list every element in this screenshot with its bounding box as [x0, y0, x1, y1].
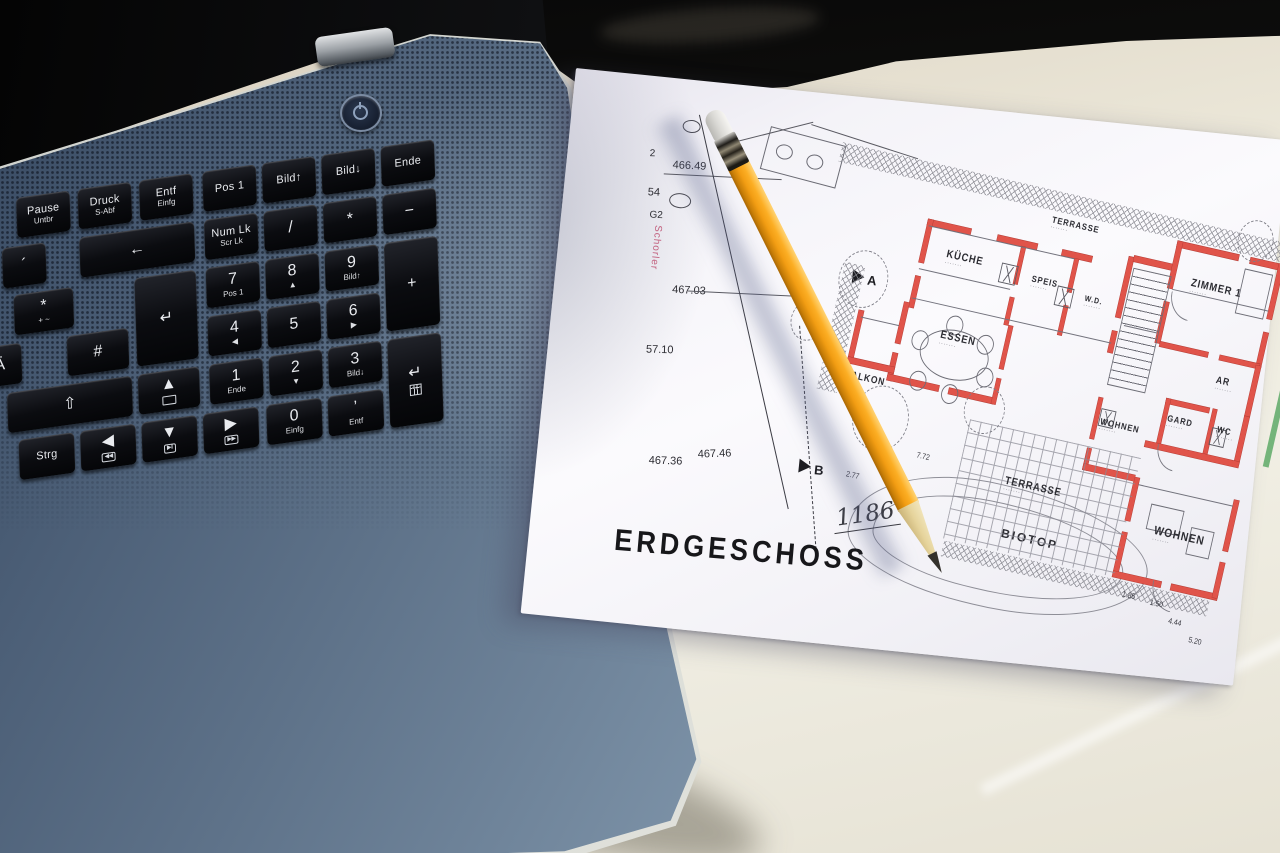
plan-wall [1159, 341, 1208, 357]
key-label: ↵ [408, 364, 422, 383]
key-a-umlaut: Ä [0, 343, 22, 389]
elevation-mark-e46746: 467.46 [697, 447, 731, 460]
room-label-gard: GARD······· [1165, 413, 1194, 434]
key-arrow-up: ▲ [138, 366, 201, 415]
key-iso-enter: ↵ [134, 270, 198, 367]
key-np6: 6▶ [326, 292, 381, 340]
plan-wall [1166, 398, 1210, 413]
key-label: Ende [394, 155, 421, 170]
key-acute: ´ [2, 242, 47, 288]
key-bild-down: Bild↓ [321, 148, 376, 196]
blueprint-paper: 2466.4954G2467.0357.10467.36467.46 A BBI… [521, 68, 1280, 686]
key-sublabel: ◀ [232, 337, 238, 346]
key-numlk: Num LkScr Lk [204, 213, 259, 261]
key-np0: 0Einfg [266, 397, 323, 445]
door-swing [1166, 291, 1193, 321]
site-circle [774, 143, 794, 162]
dimension-d150: 1.50 [1149, 598, 1164, 610]
key-label: 8 [287, 262, 297, 280]
key-backspace: ← [79, 221, 195, 277]
key-np-slash: / [263, 204, 318, 252]
key-label: ↵ [159, 309, 173, 328]
key-sublabel: Einfg [286, 425, 304, 436]
key-label: Strg [36, 449, 58, 464]
power-icon-bar [359, 102, 361, 109]
key-np-asterisk: * [323, 196, 378, 244]
room-label-speis: SPEIS······· [1029, 274, 1059, 296]
photo-scene: 2466.4954G2467.0357.10467.36467.46 A BBI… [0, 0, 1280, 853]
elevation-mark-e5710: 57.10 [646, 343, 674, 356]
key-hash: # [67, 328, 130, 377]
room-label-kueche: KÜCHE······· [944, 248, 985, 274]
plan-wall [1219, 355, 1260, 369]
key-label: 7 [228, 271, 238, 289]
elevation-mark-e2: 2 [650, 148, 656, 159]
key-label: ▲ [161, 375, 178, 394]
key-label: # [93, 343, 103, 361]
key-sublabel: Einfg [157, 198, 175, 209]
key-shift: ⇧ [7, 376, 133, 434]
key-label: ▶ [224, 416, 237, 435]
key-np-plus: + [384, 236, 441, 332]
key-np5: 5 [267, 301, 322, 349]
room-label-wohnen-mitte: WOHNEN······· [1098, 416, 1141, 440]
dimension-d520: 5.20 [1188, 635, 1203, 647]
dimension-d444: 4.44 [1167, 616, 1182, 628]
next-track-icon: ▶▶ [224, 435, 238, 445]
key-label: 3 [350, 351, 360, 369]
key-pos1: Pos 1 [202, 164, 257, 212]
plan-line [861, 317, 899, 327]
key-sublabel: Scr Lk [220, 237, 243, 249]
key-label: Ä [0, 357, 6, 375]
dimension-d772: 7.72 [916, 450, 931, 462]
key-np1: 1Ende [209, 357, 264, 405]
key-arrow-left: ◀◀◀ [80, 424, 137, 472]
key-np-minus: − [382, 188, 437, 236]
key-np-enter: ↵ [387, 332, 444, 428]
display-icon [162, 395, 176, 406]
calculator-icon [410, 383, 422, 396]
plan-wall [1212, 562, 1225, 598]
red-stamp-note: Schorler [648, 225, 664, 271]
key-np8: 8▲ [265, 252, 320, 300]
key-label: ▼ [161, 424, 178, 443]
key-label: ’ [353, 399, 357, 416]
key-sublabel: Bild↓ [347, 368, 364, 379]
key-sublabel: ▼ [292, 377, 300, 387]
plan-wall [1223, 500, 1239, 552]
key-np2: 2▼ [268, 349, 323, 397]
key-ende: Ende [380, 139, 435, 187]
key-label: 9 [347, 254, 357, 272]
key-sublabel: S-Abf [95, 206, 115, 217]
plan-line [919, 268, 1010, 290]
play-pause-icon: ▶‖ [164, 443, 176, 453]
key-label: − [404, 202, 414, 220]
hatch-strip-north [839, 142, 1280, 263]
key-sublabel: Untbr [34, 215, 54, 226]
key-label: 2 [291, 359, 301, 377]
room-label-wd: W.D.······· [1082, 294, 1103, 313]
plan-wall [895, 302, 909, 344]
plan-wall [999, 326, 1013, 370]
plan-wall [1245, 365, 1261, 417]
key-sublabel: + ~ [38, 315, 50, 325]
key-label: ← [129, 240, 146, 259]
key-arrow-right: ▶▶▶ [203, 406, 260, 454]
key-star-plus-tilde: *+ ~ [13, 287, 74, 336]
key-np9: 9Bild↑ [324, 244, 379, 292]
key-np3: 3Bild↓ [328, 341, 383, 389]
door-swing [1153, 444, 1178, 472]
plan-wall [1234, 416, 1250, 464]
key-bild-up: Bild↑ [262, 156, 317, 204]
room-label-ar: AR······· [1214, 375, 1235, 396]
key-label: * [40, 298, 47, 316]
power-button [340, 94, 382, 132]
key-label: 5 [289, 315, 299, 333]
room-label-zimmer1: ZIMMER 1······· [1188, 277, 1242, 306]
key-sublabel: ▲ [289, 280, 297, 290]
key-label: Bild↑ [276, 172, 302, 187]
key-pause: PauseUntbr [16, 190, 71, 238]
key-sublabel: Entf [349, 417, 363, 427]
key-label: + [407, 275, 417, 293]
elevation-mark-eg2: G2 [649, 210, 663, 222]
key-druck: DruckS-Abf [77, 182, 132, 230]
plan-wall [908, 276, 920, 308]
key-label: ⇧ [63, 395, 77, 414]
key-label: 4 [230, 319, 240, 337]
key-label: Pos 1 [215, 180, 245, 196]
key-label: 0 [289, 408, 299, 426]
key-label: 6 [348, 302, 358, 320]
key-sublabel: Bild↑ [343, 271, 360, 282]
room-area-note: ······· [1214, 386, 1233, 396]
keyboard: PauseUntbrDruckS-AbfEntfEinfgPos 1Bild↑B… [16, 138, 452, 489]
chair [939, 382, 960, 405]
key-label: Bild↓ [336, 164, 362, 179]
key-sublabel: Ende [227, 385, 246, 396]
key-label: ◀ [102, 433, 115, 452]
key-strg: Strg [18, 432, 75, 480]
key-sublabel: ▶ [351, 320, 357, 329]
key-entf-comma: ’Entf [327, 389, 384, 437]
key-label: 1 [231, 367, 241, 385]
key-label: / [288, 219, 293, 237]
elevation-mark-e54: 54 [648, 186, 661, 199]
prev-track-icon: ◀◀ [101, 452, 115, 462]
key-entf-einfg: EntfEinfg [139, 173, 194, 221]
key-sublabel: Pos 1 [223, 288, 244, 299]
chair [907, 369, 928, 392]
key-arrow-down: ▼▶‖ [141, 415, 198, 463]
key-np7: 7Pos 1 [206, 261, 261, 309]
dimension-d185: 1.85 [1121, 589, 1136, 601]
key-label: ´ [21, 257, 27, 275]
key-np4: 4◀ [207, 309, 262, 357]
elevation-mark-e46736: 467.36 [649, 455, 683, 468]
key-label: * [347, 211, 354, 229]
